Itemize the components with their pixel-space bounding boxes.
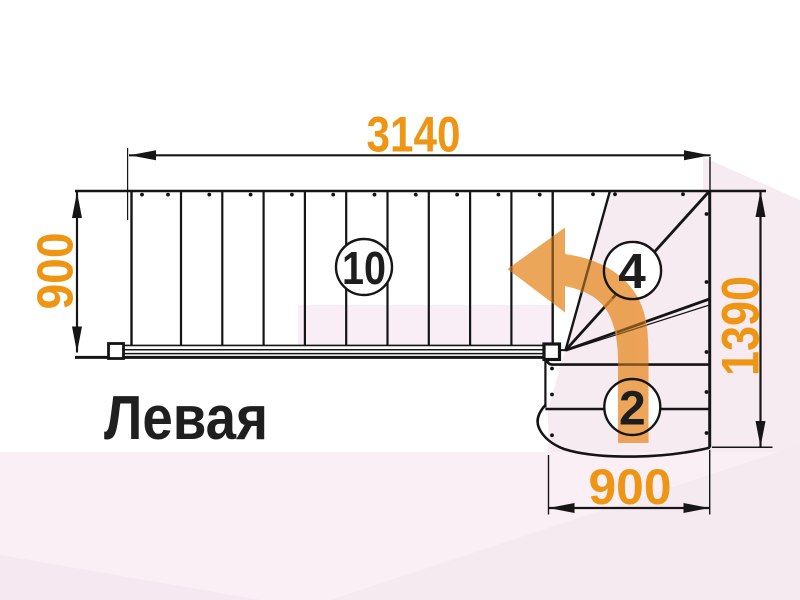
svg-text:2: 2 <box>619 383 646 436</box>
svg-text:4: 4 <box>618 244 646 299</box>
svg-text:900: 900 <box>589 459 672 515</box>
svg-text:3140: 3140 <box>367 107 461 163</box>
svg-text:10: 10 <box>342 242 386 294</box>
svg-text:900: 900 <box>27 233 84 310</box>
svg-text:Левая: Левая <box>104 383 268 453</box>
svg-text:1390: 1390 <box>712 276 771 376</box>
